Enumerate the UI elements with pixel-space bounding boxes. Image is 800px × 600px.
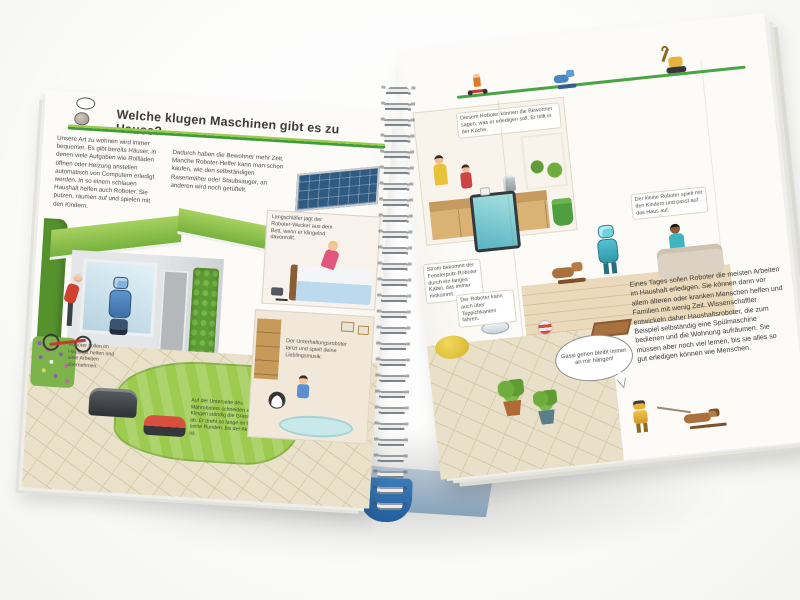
photo-backdrop: Welche klugen Maschinen gibt es zu Hause…	[0, 0, 800, 600]
robot-legs	[603, 263, 609, 274]
blue-household-robot	[105, 276, 135, 339]
caption-entertainment-robot: Der Unterhaltungsroboter tanzt und spiel…	[285, 338, 352, 362]
gripper-robot-icon	[661, 45, 692, 75]
woman-head	[328, 241, 339, 252]
spiral-binding	[376, 84, 411, 516]
girl-body	[460, 172, 473, 189]
wood-cabinet	[254, 318, 282, 379]
caption-household-robot: Roboter sollen im Haushalt helfen und vi…	[67, 342, 124, 371]
cyclist-figure	[40, 256, 102, 353]
girl-figure	[459, 164, 473, 197]
robot-legs	[636, 424, 641, 433]
robot-body	[633, 410, 648, 424]
mother-figure	[432, 154, 449, 195]
gripper-wheel-base	[666, 66, 687, 74]
plant-pot	[503, 400, 523, 417]
speech-bubble-text: Gassi gehen bleibt immer an mir hängen!	[560, 347, 627, 368]
plant-leaves	[497, 379, 525, 403]
robot-head-icon	[113, 276, 129, 289]
caption-companion-robot: Der kleine Roboter spielt mit den Kinder…	[630, 186, 708, 220]
potted-plant	[497, 379, 527, 418]
dog-walking-robot	[630, 400, 651, 434]
robot-body	[597, 238, 619, 264]
robot-wheel-base	[109, 318, 128, 335]
body-paragraph: Eines Tages sollen Roboter die meisten A…	[629, 265, 789, 365]
robot-dog-head	[566, 70, 575, 78]
bed	[289, 264, 373, 305]
kitchen-window	[521, 132, 568, 190]
mother-body	[433, 163, 448, 185]
cyclist-legs	[67, 302, 73, 326]
plant-leaves	[532, 389, 558, 412]
picture-frame-icon	[341, 321, 355, 332]
potted-plant	[532, 389, 559, 425]
cyclist-head	[73, 273, 83, 283]
rug	[278, 414, 353, 439]
kid-on-scooter-icon	[465, 72, 493, 96]
scooter-kid	[473, 73, 481, 87]
right-page: Diesem Roboter können die Bewohner sagen…	[396, 13, 800, 479]
mascot-speech-bubble-icon	[76, 97, 96, 110]
speech-bubble-tail	[617, 370, 626, 389]
picture-frame-icon	[358, 325, 370, 335]
dog-head	[571, 262, 583, 272]
robot-dog-icon	[551, 69, 577, 87]
house-door	[158, 269, 189, 352]
caption-vacuum-robot: Der Roboter kann auch über Teppichkanten…	[456, 289, 517, 328]
teal-companion-robot	[593, 224, 622, 276]
bedroom-scene: Langschläfer jagt der Roboter-Wecker aus…	[261, 210, 381, 311]
child-body	[297, 384, 310, 399]
robot-head-icon	[633, 400, 646, 410]
family-dog	[551, 262, 585, 284]
panda-toy-robot-icon	[268, 391, 286, 409]
cyclist-torso	[63, 283, 80, 305]
living-room-scene: Der Unterhaltungsroboter tanzt und spiel…	[247, 309, 375, 444]
plant-pot	[538, 409, 556, 425]
intro-paragraph-2: Dadurch haben die Bewohner mehr Zeit. Ma…	[170, 149, 292, 197]
robot-body	[108, 289, 132, 318]
child-figure	[296, 375, 310, 406]
robot-alarm-clock-icon	[271, 287, 283, 296]
left-page: Welche klugen Maschinen gibt es zu Hause…	[22, 90, 394, 509]
mascot-body-icon	[74, 112, 90, 126]
dog-head	[708, 408, 720, 417]
window-cleaning-robot-icon	[480, 187, 491, 196]
dog-body	[684, 412, 712, 424]
caption-robot-alarm: Langschläfer jagt der Roboter-Wecker aus…	[270, 214, 336, 245]
robot-head-icon	[597, 224, 614, 239]
dachshund-dog	[683, 408, 720, 428]
intro-paragraph-1: Unsere Art zu wohnen wird immer bequemer…	[53, 135, 161, 215]
charging-station	[88, 387, 138, 418]
robot-lawnmower	[143, 415, 186, 438]
solar-panel	[295, 166, 380, 212]
scooter-wheels	[467, 90, 472, 95]
